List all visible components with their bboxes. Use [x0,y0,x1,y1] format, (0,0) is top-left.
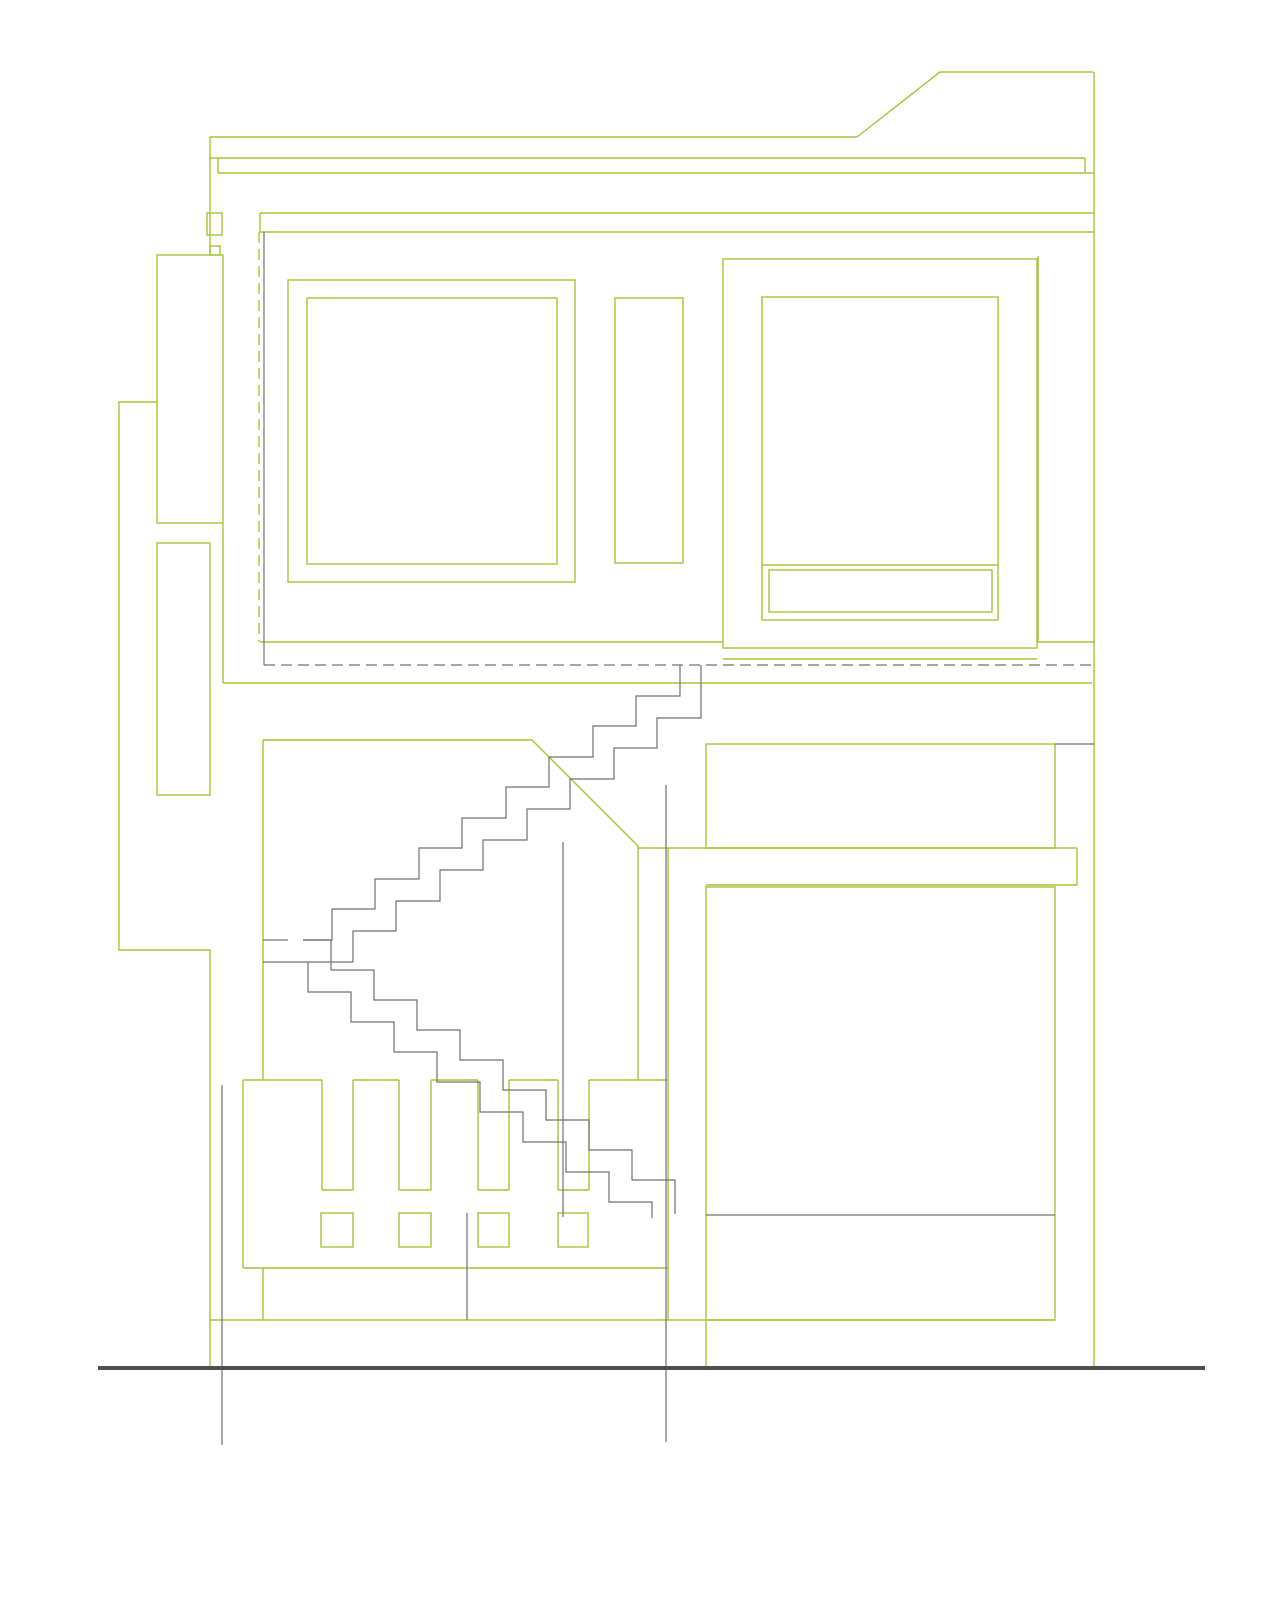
lower-window-upper-pane [706,744,1055,848]
stair-upper-run-outer [353,665,701,962]
lower-window-main-pane [706,887,1055,1320]
window-right-vent-panel [769,570,992,612]
left-column-outline [119,402,210,1368]
balustrade-square-3 [478,1213,509,1247]
stair-lower-run-inner [308,962,652,1218]
window-left-inner-frame [307,298,557,564]
window-left-outer-frame [288,280,575,582]
stair-lower-run-outer [303,940,675,1214]
stair-room-chamfer [532,740,638,846]
window-right-inner-frame [762,297,998,620]
window-right-outer-frame [723,259,1037,648]
stair-upper-run-inner [303,665,680,940]
drawing-surface [0,0,1280,1600]
downpipe-notch [210,246,220,255]
cad-viewport [0,0,1280,1600]
balustrade-square-4 [558,1213,588,1247]
parapet-outline [857,72,1093,137]
building-section-drawing [0,0,1280,1600]
balustrade-square-1 [321,1213,353,1247]
balustrade-square-2 [399,1213,431,1247]
bay-block-lower [157,543,210,795]
gutter-notch [207,213,222,235]
bay-block-upper [157,255,223,523]
window-center-panel [615,298,683,563]
